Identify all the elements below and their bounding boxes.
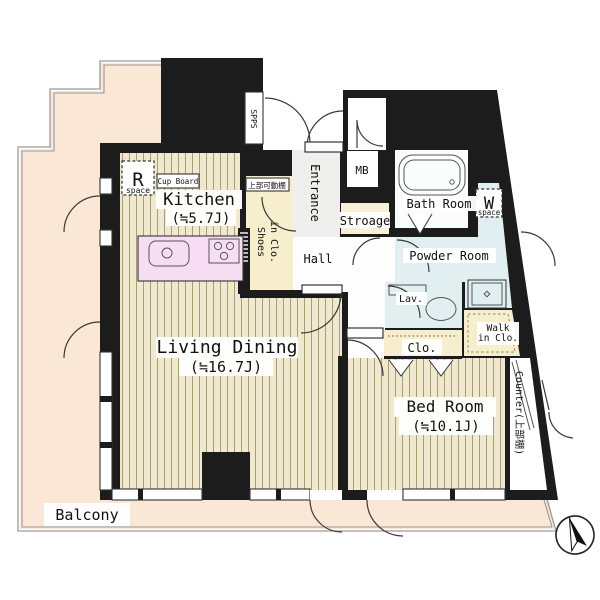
wic-label-line2: in Clo. (478, 333, 518, 344)
corridor-living-wall (342, 292, 348, 358)
bath-label: Bath Room (406, 197, 471, 211)
entrance-door-leaf (305, 142, 343, 152)
window-mullion (276, 489, 281, 500)
powder-fixtures (468, 280, 506, 308)
balcony-door-opening-bedroom (367, 490, 403, 500)
living-side-window (100, 352, 112, 490)
kitchen-label: Kitchen (163, 190, 235, 210)
hall-floor-right (345, 237, 395, 282)
floor-plan-page: Kitchen (≒5.7J) Living Dining (≒16.7J) B… (0, 0, 600, 600)
upper-shelf-label: 上部可動棚 (248, 180, 286, 190)
living-floor-right (240, 298, 345, 490)
powder-label: Powder Room (409, 249, 488, 263)
kitchen-size-label: (≒5.7J) (171, 211, 230, 227)
vanity-sink (468, 280, 506, 308)
cupboard-label: Cup Board (158, 177, 199, 186)
window-mullion (100, 396, 112, 402)
corridor-floor (345, 282, 385, 358)
living-size-label: (≒16.7J) (190, 358, 262, 376)
closet-label: Clo. (408, 341, 437, 355)
shoes-label-line2: in Clo. (268, 221, 279, 263)
mb-label: MB (355, 164, 369, 177)
kitchen-fixtures (138, 236, 243, 281)
living-bedroom-wall (338, 356, 348, 490)
window-mullion (138, 489, 143, 500)
r-space-sub: space (126, 186, 150, 195)
bedroom-label: Bed Room (406, 397, 483, 416)
mb-door-recess (348, 98, 386, 150)
compass-icon (551, 511, 599, 559)
window-mullion (100, 442, 112, 448)
living-window-left (112, 489, 202, 500)
powder-outer-door-arc (521, 232, 555, 266)
balcony-label: Balcony (55, 506, 118, 524)
kitchen-side-window2 (100, 230, 112, 246)
storage-label: Stroage (340, 214, 391, 228)
entrance-label: Entrance (308, 164, 322, 222)
w-space-sub: space (478, 208, 501, 217)
hall-living-wall (240, 290, 302, 298)
living-label: Living Dining (157, 337, 298, 358)
hall-label: Hall (304, 252, 333, 266)
bathroom-floor (395, 150, 468, 228)
kitchen-side-window (100, 178, 112, 194)
balcony-door-opening-living (310, 490, 342, 500)
closet-bedroom-wall (384, 356, 462, 359)
living-door-leaf (302, 285, 342, 294)
floor-plan-drawing: Kitchen (≒5.7J) Living Dining (≒16.7J) B… (0, 0, 600, 600)
window-mullion (450, 489, 455, 500)
bedroom-door-leaf (347, 328, 383, 338)
spps-label: SPPS (249, 109, 258, 128)
counter-label: Counter(上部棚) (513, 371, 526, 455)
shoes-label-line1: Shoes (255, 227, 266, 257)
bedroom-size-label: (≒10.1J) (412, 419, 479, 435)
structural-pillar (202, 452, 250, 500)
lav-label: Lav. (399, 294, 423, 305)
kitchen-counter (138, 236, 243, 281)
